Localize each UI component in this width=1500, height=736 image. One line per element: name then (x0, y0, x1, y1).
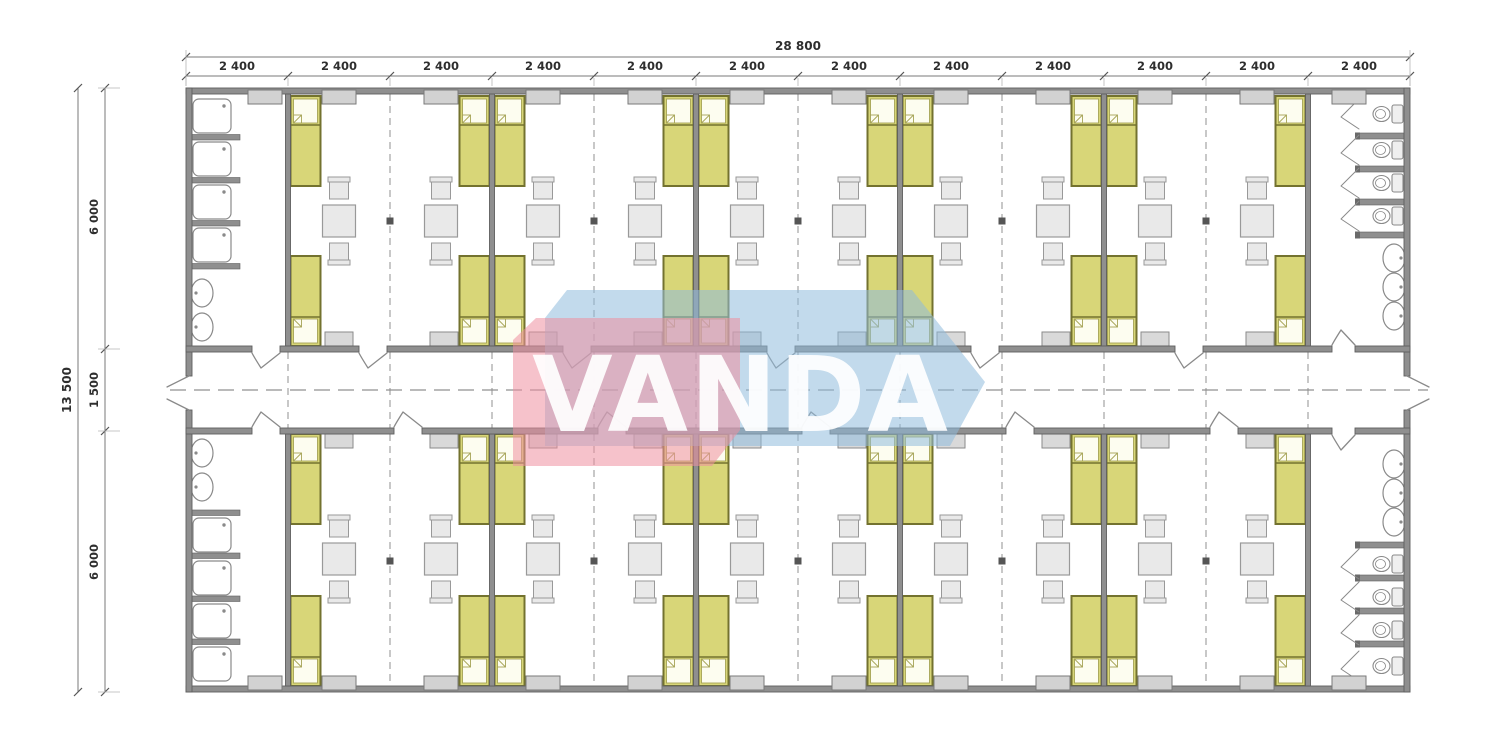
chair-back (1042, 177, 1064, 182)
chair-back (532, 260, 554, 265)
partition-wall (286, 434, 291, 686)
toilet-tank (1392, 141, 1403, 159)
shower-head-icon (222, 104, 225, 107)
shower-head-icon (222, 190, 225, 193)
chair-back (838, 260, 860, 265)
dim-label-module: 2 400 (1137, 59, 1173, 73)
table (1241, 205, 1274, 237)
chair (738, 520, 757, 537)
joint-marker (591, 558, 598, 565)
toilet-tank (1392, 657, 1403, 675)
wardrobe (430, 332, 458, 346)
toilet-tank (1392, 105, 1403, 123)
table (935, 205, 968, 237)
chair (1146, 581, 1165, 598)
faucet-icon (1399, 314, 1402, 317)
stall-partition (192, 264, 240, 270)
chair (432, 520, 451, 537)
toilet-tank (1392, 555, 1403, 573)
chair-back (328, 515, 350, 520)
chair-back (532, 515, 554, 520)
partition-wall (286, 94, 291, 346)
chair-back (736, 598, 758, 603)
window (628, 676, 662, 690)
corridor-wall-bottom (186, 428, 252, 434)
chair (636, 520, 655, 537)
window (526, 90, 560, 104)
chair (942, 581, 961, 598)
stall-partition (192, 510, 240, 516)
wardrobe (1141, 332, 1169, 346)
chair (738, 243, 757, 260)
shower-stall (193, 561, 231, 595)
stall-partition (1358, 542, 1404, 548)
faucet-icon (194, 325, 197, 328)
chair (636, 243, 655, 260)
chair-back (430, 177, 452, 182)
chair-back (736, 515, 758, 520)
chair-back (328, 177, 350, 182)
corridor-wall-top (1355, 346, 1410, 352)
stall-partition (1358, 199, 1404, 205)
toilet-tank (1392, 207, 1403, 225)
partition-wall (1306, 434, 1311, 686)
chair-back (1042, 260, 1064, 265)
chair-back (634, 515, 656, 520)
table (527, 543, 560, 575)
chair (942, 243, 961, 260)
partition-wall (490, 94, 495, 346)
window (1138, 676, 1172, 690)
corridor-wall-top (999, 346, 1175, 352)
chair (1248, 243, 1267, 260)
chair (840, 581, 859, 598)
chair-back (1246, 260, 1268, 265)
faucet-icon (1399, 462, 1402, 465)
chair (432, 182, 451, 199)
corridor-wall-bottom (1355, 428, 1410, 434)
table (1139, 543, 1172, 575)
window (832, 676, 866, 690)
sink (191, 439, 213, 467)
joint-marker (1203, 218, 1210, 225)
chair (330, 581, 349, 598)
dim-label-module: 2 400 (627, 59, 663, 73)
stall-partition (1358, 575, 1404, 581)
table (629, 543, 662, 575)
chair-back (634, 260, 656, 265)
wardrobe (1141, 434, 1169, 448)
table (731, 543, 764, 575)
window (1332, 676, 1366, 690)
joint-marker (591, 218, 598, 225)
window (322, 676, 356, 690)
table (833, 543, 866, 575)
window (730, 90, 764, 104)
table (323, 543, 356, 575)
dim-label-module: 2 400 (525, 59, 561, 73)
sink (191, 473, 213, 501)
table (425, 543, 458, 575)
window (934, 90, 968, 104)
wardrobe (325, 332, 353, 346)
chair-back (1144, 260, 1166, 265)
chair-back (940, 177, 962, 182)
joint-marker (795, 218, 802, 225)
table (935, 543, 968, 575)
dim-label-module: 2 400 (1239, 59, 1275, 73)
window (1036, 676, 1070, 690)
dim-label-module: 2 400 (1341, 59, 1377, 73)
floor-plan: 28 8002 4002 4002 4002 4002 4002 4002 40… (0, 0, 1500, 736)
joint-marker (795, 558, 802, 565)
shower-stall (193, 99, 231, 133)
chair-back (1246, 515, 1268, 520)
partition-wall (694, 434, 699, 686)
exterior-wall-right (1404, 410, 1410, 692)
chair-back (1246, 177, 1268, 182)
table (527, 205, 560, 237)
chair-back (940, 598, 962, 603)
corridor-wall-top (1203, 346, 1332, 352)
dim-label-module: 2 400 (1035, 59, 1071, 73)
stall-post (1355, 542, 1360, 549)
chair-back (940, 260, 962, 265)
chair (432, 581, 451, 598)
chair-back (532, 177, 554, 182)
dim-label-segment: 1 500 (87, 372, 101, 408)
window (1138, 90, 1172, 104)
stall-partition (192, 553, 240, 559)
chair-back (634, 177, 656, 182)
dim-label-segment: 6 000 (87, 199, 101, 235)
chair (1146, 520, 1165, 537)
corridor-wall-top (280, 346, 359, 352)
chair-back (430, 260, 452, 265)
table (425, 205, 458, 237)
chair (1146, 243, 1165, 260)
exterior-wall-left (186, 410, 192, 692)
chair (534, 581, 553, 598)
chair (738, 581, 757, 598)
window (424, 90, 458, 104)
faucet-icon (1399, 520, 1402, 523)
chair-back (1144, 598, 1166, 603)
wardrobe (1246, 434, 1274, 448)
shower-head-icon (222, 147, 225, 150)
window (424, 676, 458, 690)
chair (534, 520, 553, 537)
chair (942, 520, 961, 537)
chair (840, 520, 859, 537)
faucet-icon (194, 451, 197, 454)
partition-wall (898, 434, 903, 686)
chair-back (1042, 598, 1064, 603)
window (1332, 90, 1366, 104)
window (1240, 90, 1274, 104)
shower-stall (193, 518, 231, 552)
chair (330, 520, 349, 537)
window (628, 90, 662, 104)
shower-head-icon (222, 523, 225, 526)
dim-label-total-width: 28 800 (775, 39, 821, 53)
table (1037, 543, 1070, 575)
window (248, 676, 282, 690)
joint-marker (999, 218, 1006, 225)
chair (1044, 520, 1063, 537)
chair (1248, 182, 1267, 199)
chair-back (736, 177, 758, 182)
chair (1044, 581, 1063, 598)
table (1037, 205, 1070, 237)
stall-partition (1358, 232, 1404, 238)
window (1036, 90, 1070, 104)
chair-back (532, 598, 554, 603)
dim-label-module: 2 400 (423, 59, 459, 73)
chair (840, 243, 859, 260)
chair (840, 182, 859, 199)
shower-head-icon (222, 652, 225, 655)
sink (191, 279, 213, 307)
faucet-icon (1399, 491, 1402, 494)
chair (1044, 243, 1063, 260)
stall-partition (192, 596, 240, 602)
window (730, 676, 764, 690)
chair-back (430, 598, 452, 603)
sink (191, 313, 213, 341)
dim-label-module: 2 400 (321, 59, 357, 73)
window (832, 90, 866, 104)
corridor-wall-bottom (1034, 428, 1210, 434)
floor-plan-drawing: 28 8002 4002 4002 4002 4002 4002 4002 40… (0, 0, 1500, 736)
chair (534, 243, 553, 260)
chair-back (430, 515, 452, 520)
chair (636, 182, 655, 199)
table (629, 205, 662, 237)
partition-wall (1102, 434, 1107, 686)
exterior-wall-top (186, 88, 1410, 94)
chair (1248, 520, 1267, 537)
table (1241, 543, 1274, 575)
toilet-tank (1392, 174, 1403, 192)
chair (636, 581, 655, 598)
corridor-wall-bottom (1238, 428, 1332, 434)
table (323, 205, 356, 237)
faucet-icon (194, 291, 197, 294)
joint-marker (387, 558, 394, 565)
toilet-tank (1392, 621, 1403, 639)
exterior-wall-bottom (186, 686, 1410, 692)
chair-back (1246, 598, 1268, 603)
chair-back (1042, 515, 1064, 520)
dim-label-module: 2 400 (831, 59, 867, 73)
stall-post (1355, 232, 1360, 239)
dim-label-module: 2 400 (729, 59, 765, 73)
shower-head-icon (222, 566, 225, 569)
stall-partition (1358, 608, 1404, 614)
dim-label-segment: 6 000 (87, 544, 101, 580)
wardrobe (325, 434, 353, 448)
stall-partition (192, 178, 240, 184)
stall-partition (192, 135, 240, 141)
chair-back (634, 598, 656, 603)
faucet-icon (1399, 285, 1402, 288)
partition-wall (1306, 94, 1311, 346)
stall-partition (1358, 166, 1404, 172)
chair-back (838, 598, 860, 603)
wardrobe (430, 434, 458, 448)
dim-label-module: 2 400 (219, 59, 255, 73)
chair (1146, 182, 1165, 199)
shower-stall (193, 185, 231, 219)
chair-back (838, 515, 860, 520)
joint-marker (999, 558, 1006, 565)
wardrobe (1246, 332, 1274, 346)
partition-wall (1102, 94, 1107, 346)
dim-label-module: 2 400 (933, 59, 969, 73)
window (322, 90, 356, 104)
stall-partition (192, 639, 240, 645)
chair-back (736, 260, 758, 265)
exterior-wall-right (1404, 88, 1410, 376)
chair (942, 182, 961, 199)
corridor-wall-bottom (280, 428, 394, 434)
table (1139, 205, 1172, 237)
wardrobe (1042, 332, 1070, 346)
shower-stall (193, 228, 231, 262)
stall-partition (192, 221, 240, 227)
wardrobe (1042, 434, 1070, 448)
chair-back (328, 598, 350, 603)
faucet-icon (1399, 256, 1402, 259)
dim-label-total-height: 13 500 (60, 367, 74, 413)
shower-stall (193, 647, 231, 681)
window (248, 90, 282, 104)
partition-wall (490, 434, 495, 686)
table (731, 205, 764, 237)
toilet-tank (1392, 588, 1403, 606)
chair-back (940, 515, 962, 520)
window (934, 676, 968, 690)
watermark-text: VANDA (532, 334, 950, 456)
chair (738, 182, 757, 199)
chair (330, 243, 349, 260)
joint-marker (1203, 558, 1210, 565)
exterior-wall-left (186, 88, 192, 376)
stall-partition (1358, 641, 1404, 647)
table (833, 205, 866, 237)
shower-stall (193, 604, 231, 638)
chair (1248, 581, 1267, 598)
window (526, 676, 560, 690)
corridor-wall-top (186, 346, 252, 352)
chair (432, 243, 451, 260)
faucet-icon (194, 485, 197, 488)
chair-back (838, 177, 860, 182)
chair-back (328, 260, 350, 265)
chair-back (1144, 177, 1166, 182)
chair (534, 182, 553, 199)
joint-marker (387, 218, 394, 225)
window (1240, 676, 1274, 690)
shower-head-icon (222, 233, 225, 236)
stall-partition (1358, 133, 1404, 139)
chair (1044, 182, 1063, 199)
shower-head-icon (222, 609, 225, 612)
chair-back (1144, 515, 1166, 520)
chair (330, 182, 349, 199)
shower-stall (193, 142, 231, 176)
